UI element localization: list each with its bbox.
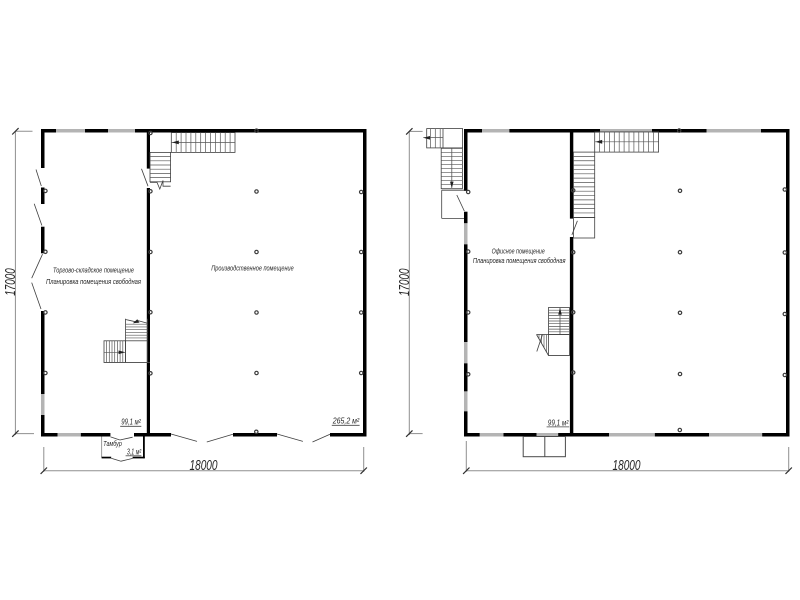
svg-text:Тамбур: Тамбур: [103, 439, 122, 448]
svg-text:17000: 17000: [2, 268, 19, 296]
svg-text:265,2 м²: 265,2 м²: [332, 417, 360, 426]
svg-text:99,1 м²: 99,1 м²: [121, 418, 141, 427]
svg-text:17000: 17000: [396, 268, 413, 296]
svg-text:Торгово-складское помещение: Торгово-складское помещение: [53, 265, 134, 274]
svg-text:18000: 18000: [190, 457, 218, 474]
svg-text:Офисное помещение: Офисное помещение: [492, 246, 545, 255]
svg-text:Планировка помещения свободная: Планировка помещения свободная: [46, 277, 141, 286]
svg-text:Планировка помещения свободная: Планировка помещения свободная: [473, 256, 566, 265]
svg-text:18000: 18000: [613, 457, 641, 474]
svg-text:Производственное помещение: Производственное помещение: [211, 263, 294, 272]
svg-text:99,1 м²: 99,1 м²: [548, 418, 569, 427]
svg-text:3,1 м²: 3,1 м²: [127, 447, 141, 456]
